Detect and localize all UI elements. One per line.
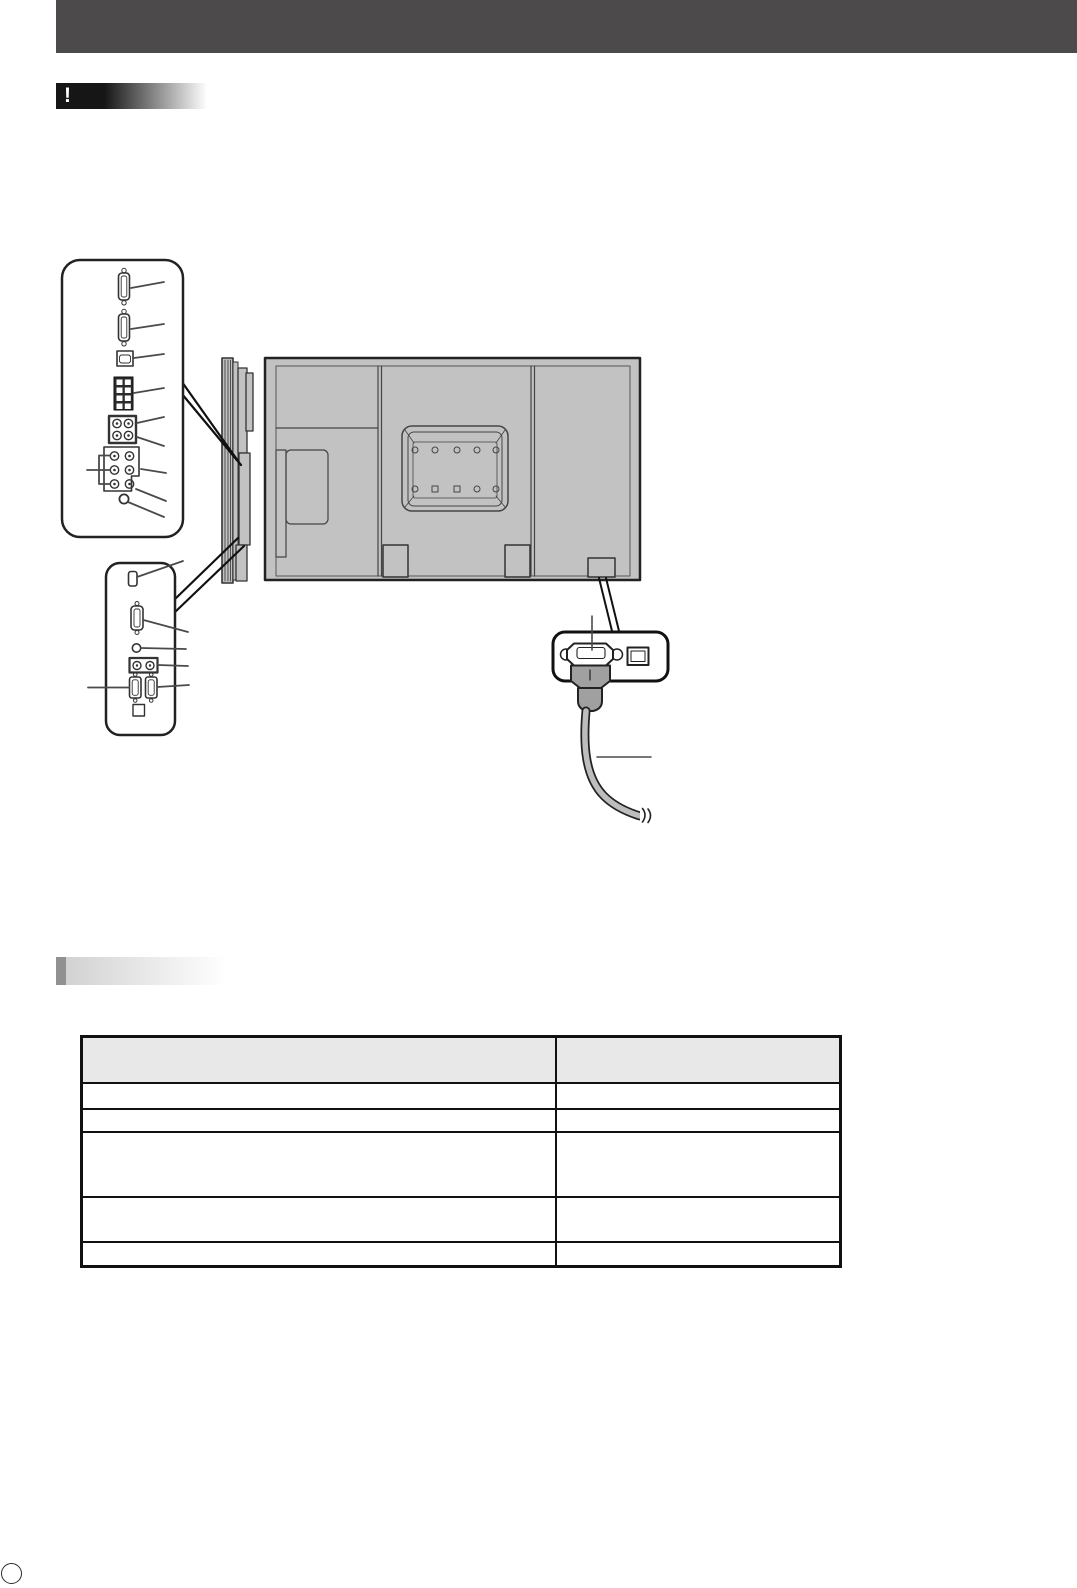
table-cell <box>82 1242 556 1267</box>
table-row <box>82 1132 841 1197</box>
table-cell <box>556 1109 841 1132</box>
table-cell <box>556 1083 841 1109</box>
table-cell <box>82 1132 556 1197</box>
spec-table <box>80 1035 842 1268</box>
page-number-circle <box>1 1563 22 1584</box>
table-row <box>82 1083 841 1109</box>
terminal-block-icon <box>114 377 133 410</box>
table-cell <box>82 1109 556 1132</box>
table-row <box>82 1109 841 1132</box>
leader-line <box>158 665 188 666</box>
callout-pointer-power <box>599 578 619 631</box>
table-row <box>82 1242 841 1267</box>
power-cord-icon <box>585 711 651 823</box>
terminal-callout-upper <box>62 260 183 537</box>
caution-banner: ! <box>56 83 207 109</box>
power-plug-icon <box>571 666 610 712</box>
exclamation-icon: ! <box>64 84 71 107</box>
leader-line <box>141 648 186 649</box>
terminal-callout-lower <box>88 561 189 735</box>
table-cell <box>556 1132 841 1197</box>
table-cell <box>556 1242 841 1267</box>
display-rear-view <box>265 358 640 580</box>
table-cell <box>556 1197 841 1242</box>
section-header-bar <box>56 957 227 985</box>
table-header-cell <box>82 1037 556 1083</box>
table-cell <box>82 1083 556 1109</box>
table-cell <box>82 1197 556 1242</box>
section-gradient <box>66 957 227 985</box>
main-power-switch-icon <box>628 648 649 666</box>
table-header-row <box>82 1037 841 1083</box>
table-row <box>82 1197 841 1242</box>
mini-jack-icon <box>132 644 140 652</box>
ac-inlet-location <box>588 558 615 577</box>
page-header-bar <box>56 0 1077 53</box>
table-header-cell <box>556 1037 841 1083</box>
connection-diagram <box>0 250 700 830</box>
section-accent-block <box>56 957 66 985</box>
